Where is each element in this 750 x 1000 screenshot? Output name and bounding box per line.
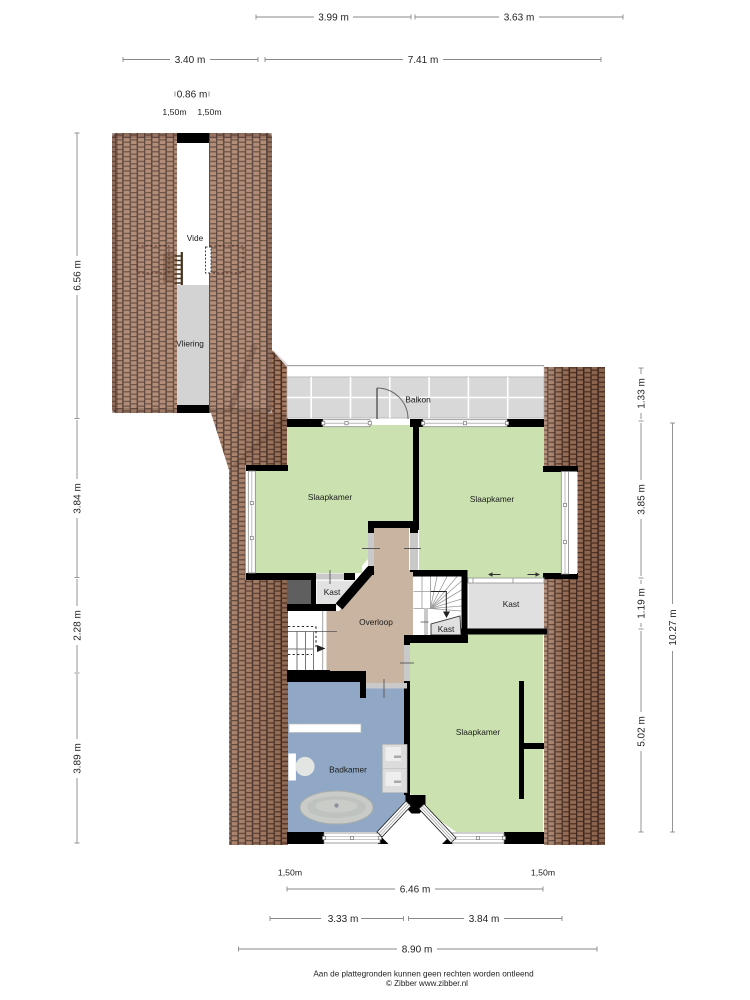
svg-text:Vide: Vide [187, 233, 204, 243]
svg-text:Kast: Kast [324, 587, 341, 597]
svg-text:1.19 m: 1.19 m [637, 588, 648, 619]
svg-text:0.86 m: 0.86 m [177, 90, 208, 101]
svg-text:© Zibber www.zibber.nl: © Zibber www.zibber.nl [386, 979, 468, 988]
svg-text:7.41 m: 7.41 m [408, 55, 439, 66]
svg-text:Vliering: Vliering [176, 339, 204, 349]
svg-text:3.63 m: 3.63 m [504, 13, 535, 24]
svg-text:6.56 m: 6.56 m [73, 260, 84, 291]
svg-text:3.40 m: 3.40 m [175, 55, 206, 66]
svg-text:1,50m: 1,50m [197, 107, 221, 117]
svg-text:3.89 m: 3.89 m [73, 743, 84, 774]
svg-text:Aan de plattegronden kunnen ge: Aan de plattegronden kunnen geen rechten… [313, 970, 534, 979]
svg-text:Slaapkamer: Slaapkamer [456, 727, 501, 737]
svg-text:1.33 m: 1.33 m [637, 378, 648, 409]
svg-text:1,50m: 1,50m [162, 107, 186, 117]
svg-text:Slaapkamer: Slaapkamer [470, 494, 515, 504]
svg-text:Badkamer: Badkamer [329, 765, 367, 775]
svg-text:8.90 m: 8.90 m [402, 945, 433, 956]
svg-text:3.99 m: 3.99 m [318, 13, 349, 24]
svg-text:2.28 m: 2.28 m [73, 610, 84, 641]
svg-text:Overloop: Overloop [359, 617, 393, 627]
svg-text:3.33 m: 3.33 m [328, 914, 359, 925]
svg-text:Kast: Kast [438, 624, 455, 634]
svg-text:Kast: Kast [503, 599, 520, 609]
svg-text:Balkon: Balkon [405, 395, 431, 405]
svg-text:6.46 m: 6.46 m [400, 885, 431, 896]
svg-text:3.84 m: 3.84 m [469, 914, 500, 925]
svg-text:3.84 m: 3.84 m [73, 483, 84, 514]
svg-text:10.27 m: 10.27 m [668, 609, 679, 645]
svg-text:1,50m: 1,50m [531, 868, 555, 878]
svg-text:Slaapkamer: Slaapkamer [308, 492, 353, 502]
svg-text:1,50m: 1,50m [278, 868, 302, 878]
svg-text:3.85 m: 3.85 m [637, 484, 648, 515]
svg-text:5.02 m: 5.02 m [637, 716, 648, 747]
